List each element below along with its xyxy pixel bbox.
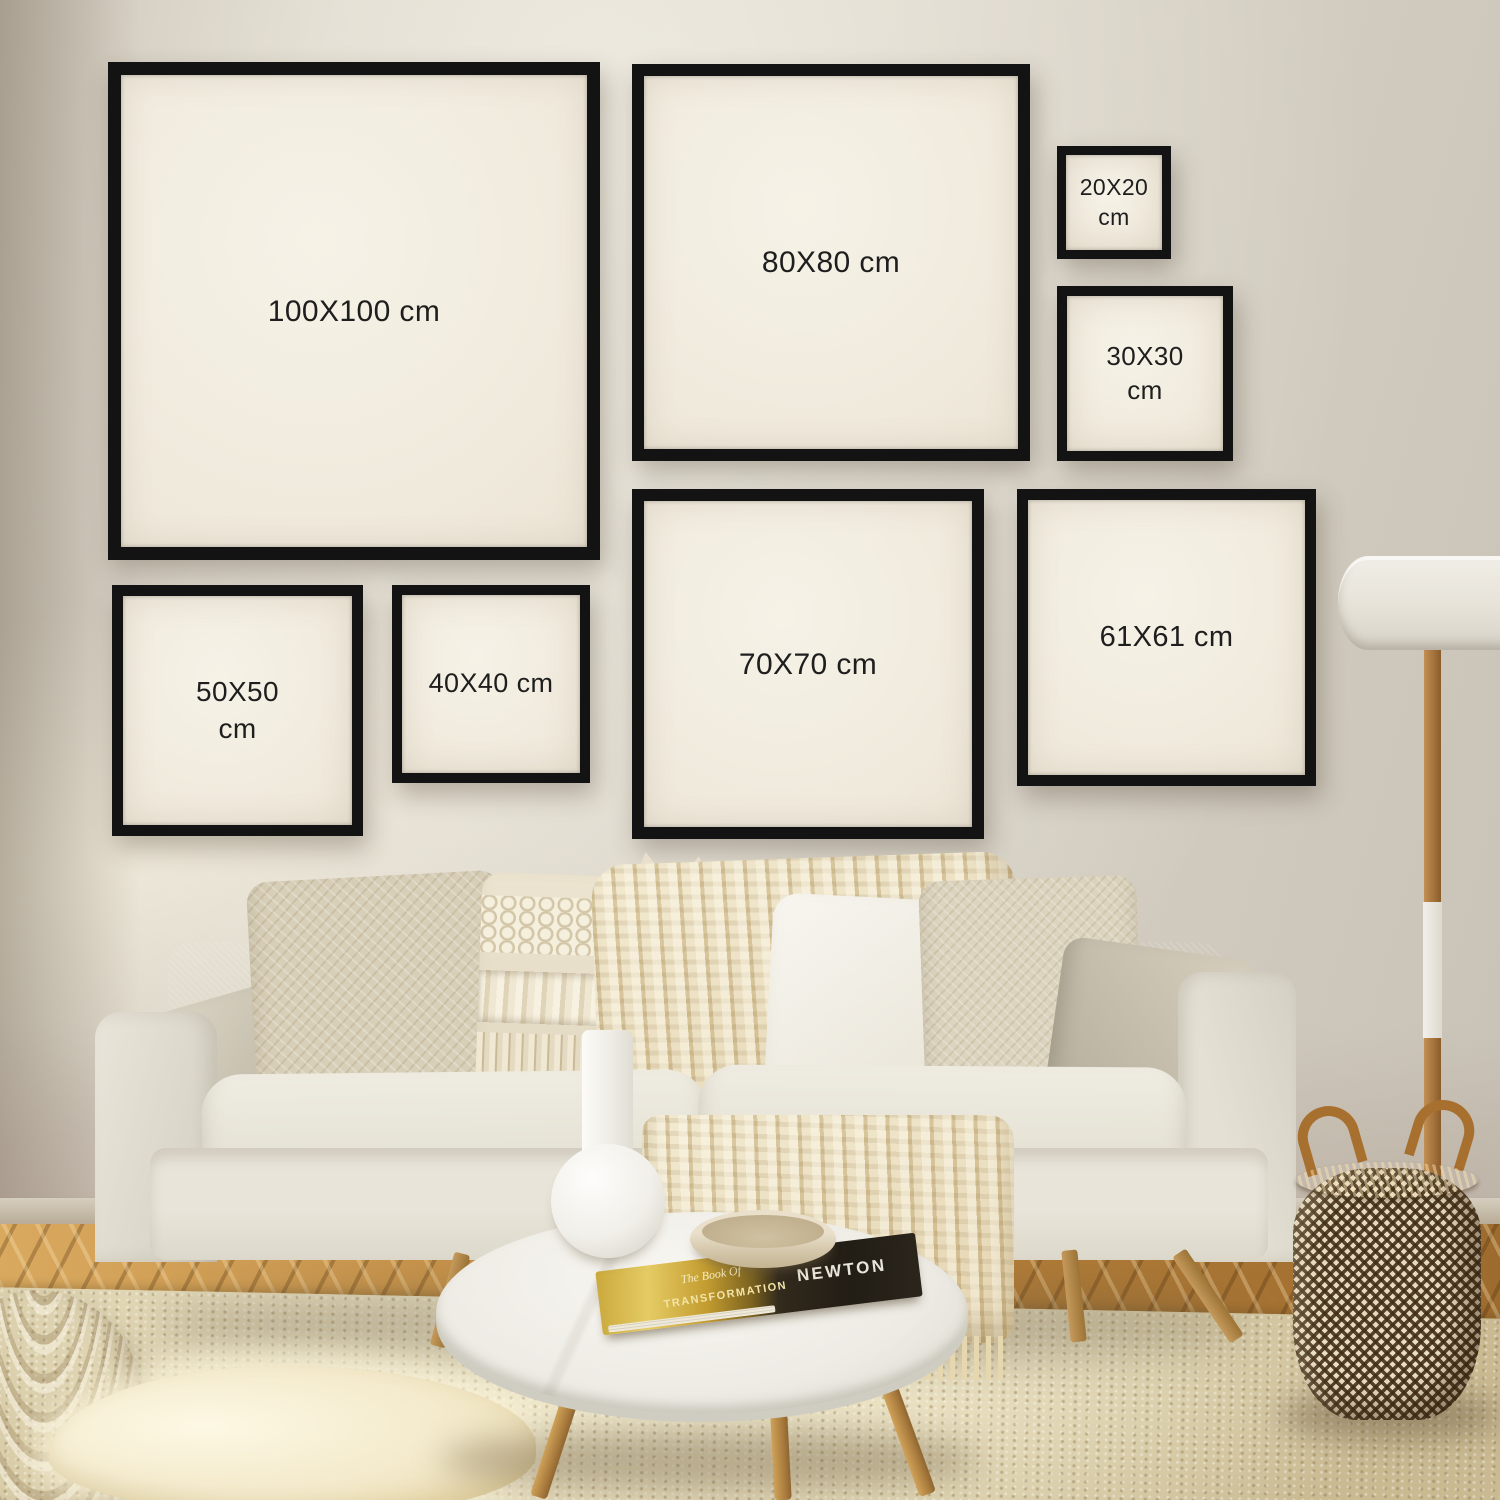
- frame-size-label: 20X20 cm: [1078, 173, 1150, 233]
- frame-size-label: 50X50 cm: [188, 674, 288, 747]
- woven-basket: [1293, 1168, 1481, 1420]
- frame-mat: 80X80 cm: [644, 76, 1018, 449]
- frame-size-label: 100X100 cm: [268, 292, 440, 331]
- white-vase: [551, 1144, 665, 1258]
- size-frame-80x80: 80X80 cm: [632, 64, 1030, 461]
- living-room-photo: 100X100 cm 80X80 cm 20X20 cm 30X30 cm 50…: [0, 0, 1500, 1500]
- floor-lamp-shade: [1338, 556, 1500, 650]
- frame-mat: 70X70 cm: [644, 501, 972, 827]
- frame-size-label: 70X70 cm: [739, 645, 877, 684]
- size-frame-20x20: 20X20 cm: [1057, 146, 1171, 259]
- frame-mat: 61X61 cm: [1028, 500, 1305, 775]
- frame-mat: 20X20 cm: [1066, 155, 1162, 250]
- frame-size-label: 40X40 cm: [429, 666, 554, 701]
- frame-size-label: 80X80 cm: [762, 243, 900, 282]
- frame-mat: 100X100 cm: [121, 75, 587, 547]
- bowl-inner: [702, 1215, 825, 1249]
- size-frame-100x100: 100X100 cm: [108, 62, 600, 560]
- basket-rim: [1296, 1162, 1478, 1198]
- size-frame-61x61: 61X61 cm: [1017, 489, 1316, 786]
- frame-size-label: 61X61 cm: [1100, 619, 1234, 657]
- frame-mat: 30X30 cm: [1067, 296, 1223, 451]
- frame-mat: 50X50 cm: [123, 596, 352, 825]
- book-script-text: The Book Of: [680, 1263, 742, 1287]
- size-frame-50x50: 50X50 cm: [112, 585, 363, 836]
- size-frame-30x30: 30X30 cm: [1057, 286, 1233, 461]
- size-frame-40x40: 40X40 cm: [392, 585, 590, 783]
- ceramic-bowl: [690, 1210, 836, 1268]
- size-frame-70x70: 70X70 cm: [632, 489, 984, 839]
- frame-mat: 40X40 cm: [402, 595, 580, 773]
- frame-size-label: 30X30 cm: [1099, 340, 1191, 408]
- floor-lamp-pole-band: [1423, 902, 1442, 1038]
